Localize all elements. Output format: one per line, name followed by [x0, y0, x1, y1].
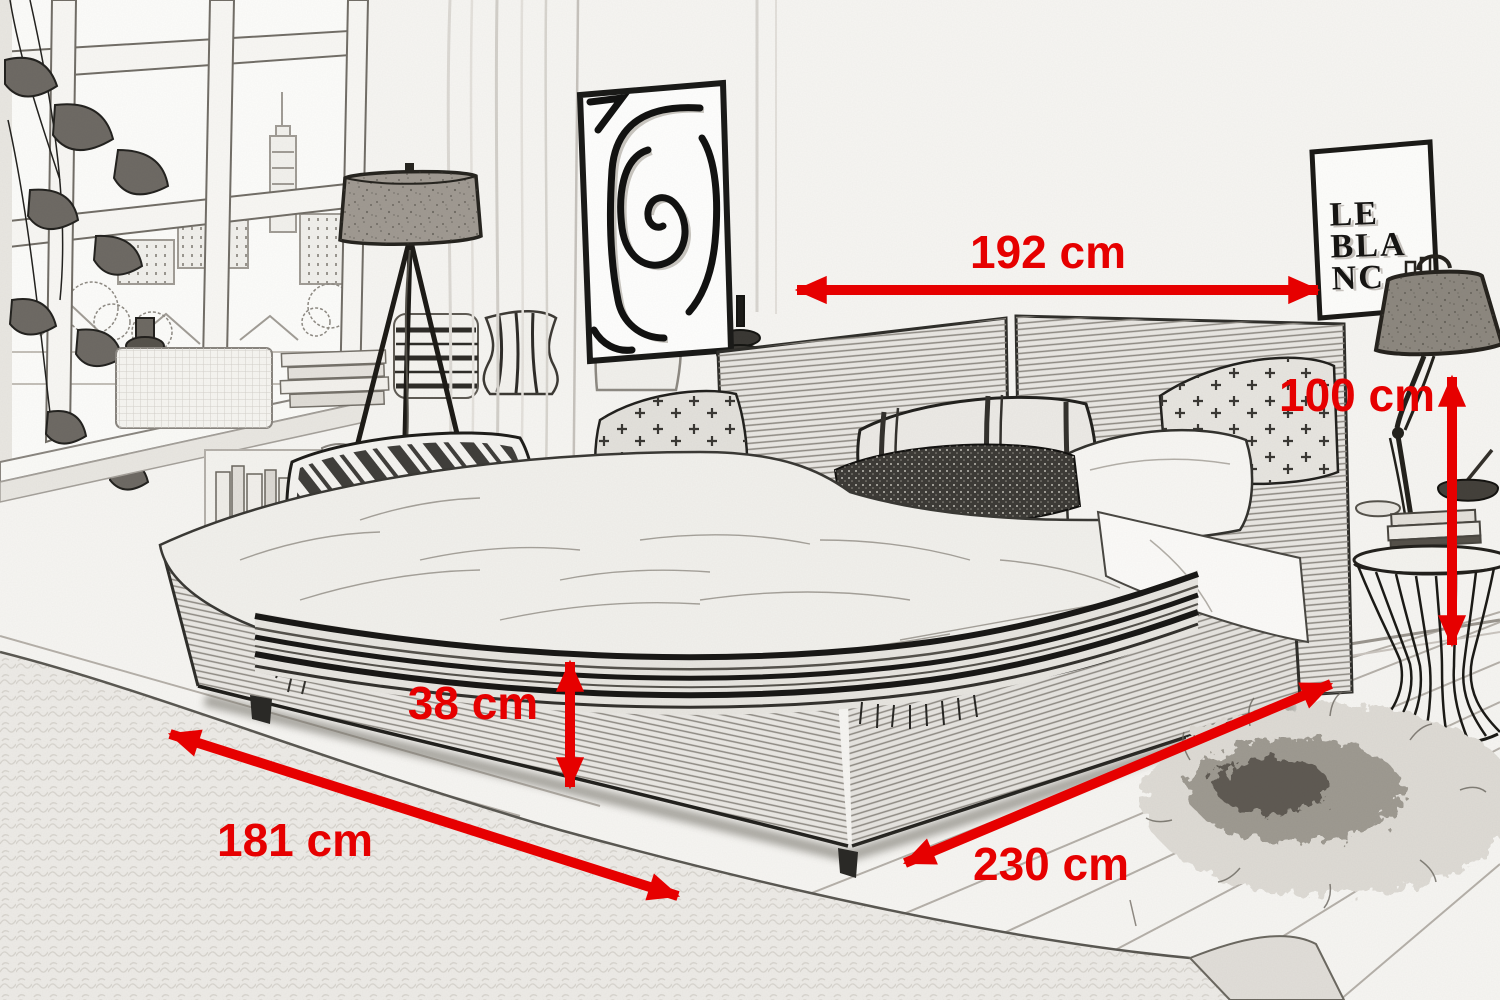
dimension-label-depth: 181 cm	[217, 813, 373, 867]
dimension-label-width: 192 cm	[970, 225, 1126, 279]
dimension-label-frame-height: 38 cm	[408, 676, 538, 730]
dimension-label-headboard-height: 100 cm	[1279, 368, 1435, 422]
dimension-label-length: 230 cm	[973, 837, 1129, 891]
bed-dimensions-diagram: LE BLA NC	[0, 0, 1500, 1000]
